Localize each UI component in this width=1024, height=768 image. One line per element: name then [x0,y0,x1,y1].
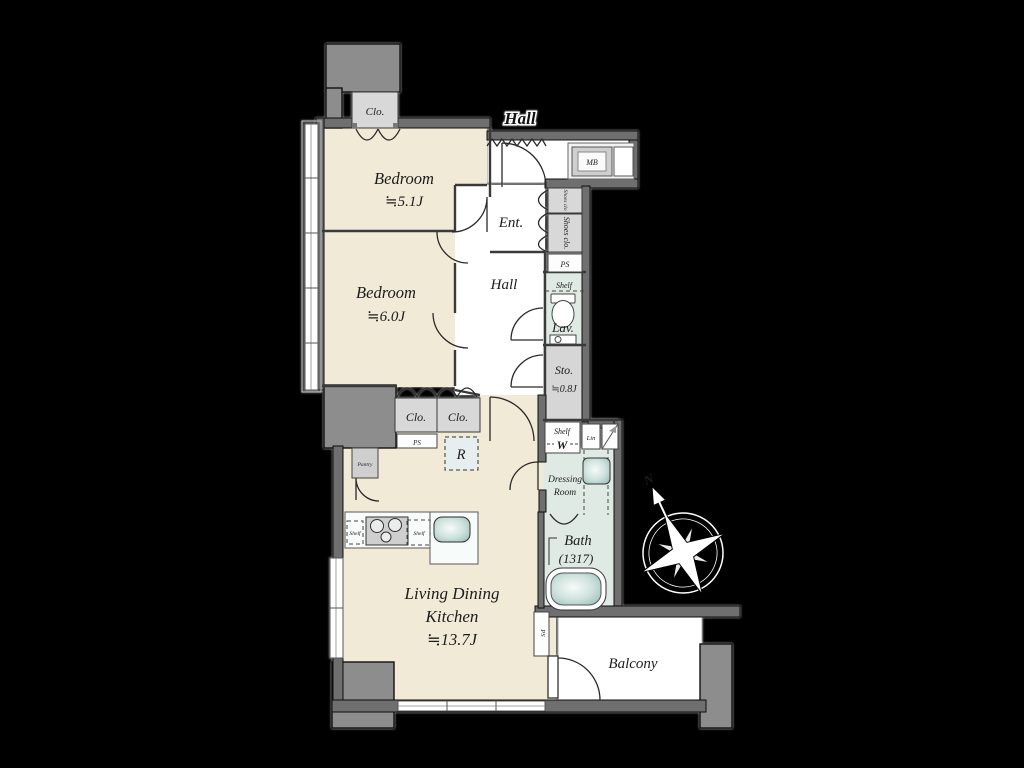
closet-top-label: Clo. [366,106,385,118]
linen-label: Lin [586,435,596,442]
ps-entry-label: PS [560,260,570,269]
storage-label: Sto. [555,363,573,377]
bedroom2-label: Bedroom [356,283,416,302]
bedroom1-size: ≒5.1J [385,194,424,210]
balcony-label: Balcony [608,656,657,672]
refrigerator-label: R [456,447,466,463]
counter-shelf-a-label: Shelf [350,530,362,537]
bedroom2-size: ≒6.0J [367,309,406,325]
room-storage [543,345,586,420]
window-bedrooms [305,124,318,390]
column-mid [324,385,396,448]
balcony-door-leaf [548,656,558,698]
bath-size: (1317) [559,551,594,566]
meter-box-2 [614,147,633,176]
bedroom1-label: Bedroom [374,169,434,188]
ps-kitchen-label: PS [412,439,421,447]
dressing-label-1: Dressing [547,475,582,485]
dressing-label-2: Room [553,488,576,498]
laundry-shelf-label: Shelf [554,427,572,436]
closet-a-label: Clo. [406,410,426,424]
closet-b-label: Clo. [448,410,468,424]
ldk-size: ≒13.7J [427,630,478,649]
hall-label: Hall [490,277,518,293]
ldk-label-1: Living Dining [404,584,500,603]
counter-shelf-b-label: Shelf [414,530,426,537]
lavatory-label: Lav. [551,320,574,335]
washer-label: W [557,438,569,452]
burner-3 [381,532,391,542]
ps-balcony-label: PS [539,628,546,637]
storage-size: ≒0.8J [551,384,577,395]
mail-box-label: MB [585,158,598,167]
lavatory-shelf-label: Shelf [556,281,574,290]
bathtub-icon [551,573,601,605]
corridor-hall-label: Hall [503,109,535,128]
shoes-closet-small-label: Shoes clo [562,190,568,211]
pantry-label: Pantry [357,462,374,468]
hall-notch [455,185,487,232]
compass-rose: N [604,453,744,614]
column-balcony [700,644,732,728]
room-hall [455,232,545,395]
floor-plan-canvas: Hall Clo. Bedroom ≒5.1J Ent. MB Shoes cl… [0,0,1024,768]
burner-2 [389,519,402,532]
column-top [326,44,400,92]
floor-plan-drawing: Hall Clo. Bedroom ≒5.1J Ent. MB Shoes cl… [302,44,740,728]
burner-1 [371,520,384,533]
bath-label: Bath [564,533,591,549]
toilet-counter [550,335,576,344]
floor-plan: Hall Clo. Bedroom ≒5.1J Ent. MB Shoes cl… [0,0,1024,768]
sink-icon [434,517,470,542]
entrance-label: Ent. [498,215,524,231]
shoes-closet-label: Shoes clo. [562,217,571,249]
compass-needle-arrow [647,485,665,505]
compass-north-label: N [640,470,656,488]
ldk-label-2: Kitchen [425,607,479,626]
washbasin-icon [583,458,610,484]
